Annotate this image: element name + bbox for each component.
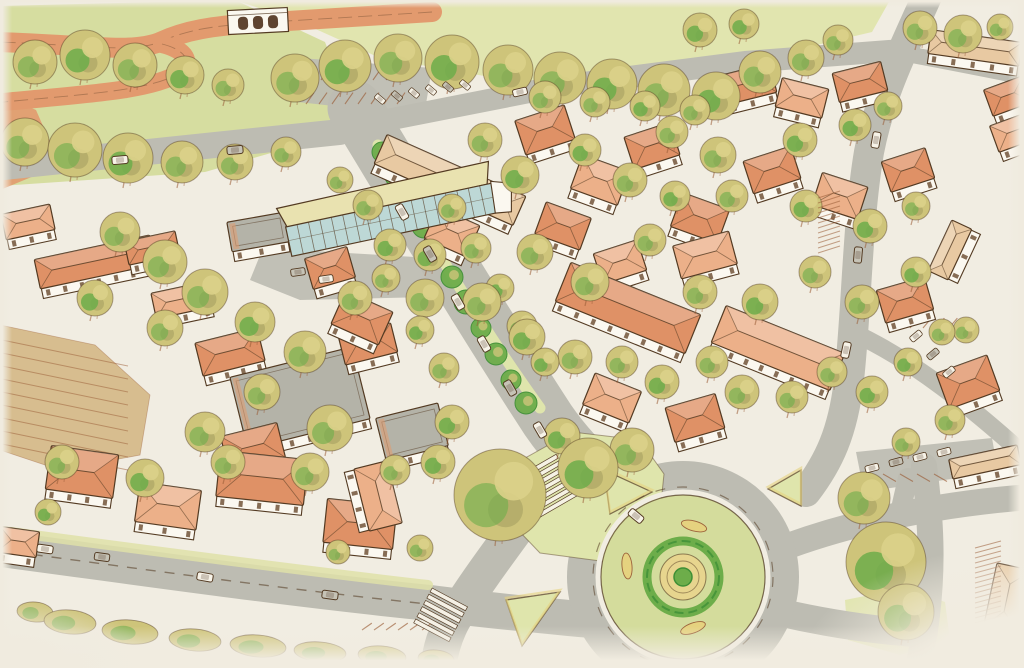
window (103, 499, 108, 505)
canopy-highlight (353, 286, 367, 300)
canopy-highlight (480, 288, 496, 304)
median-shrub-highlight (523, 396, 533, 406)
window (0, 555, 5, 561)
window (383, 551, 388, 557)
canopy-highlight (790, 385, 803, 398)
canopy-highlight (710, 350, 723, 363)
canopy-highlight (948, 409, 961, 422)
canopy-highlight (505, 52, 526, 73)
window (275, 505, 280, 511)
canopy-highlight (648, 228, 661, 241)
canopy-highlight (436, 450, 450, 464)
car-cabin (322, 276, 330, 282)
canopy-highlight (906, 352, 918, 364)
car-cabin (116, 157, 124, 163)
window (364, 549, 369, 555)
canopy-highlight (46, 503, 57, 514)
canopy-highlight (628, 168, 642, 182)
canopy-highlight (660, 370, 674, 384)
tree (953, 317, 979, 343)
hedge-green-accent (365, 651, 387, 663)
canopy-highlight (132, 49, 150, 67)
window (138, 524, 143, 530)
canopy-highlight (118, 218, 135, 235)
canopy-highlight (202, 275, 221, 294)
tree (35, 499, 61, 525)
canopy-highlight (253, 308, 270, 325)
canopy-highlight (393, 459, 406, 472)
canopy-highlight (853, 113, 866, 126)
canopy-highlight (661, 71, 683, 93)
canopy-highlight (82, 37, 103, 58)
canopy-highlight (418, 539, 429, 550)
hedge-green-accent (110, 626, 135, 640)
canopy-highlight (22, 125, 42, 145)
car-cabin (326, 592, 335, 598)
canopy-highlight (498, 278, 510, 290)
hedge-green-accent (302, 647, 325, 659)
hedge-green-accent (423, 655, 439, 666)
canopy-highlight (560, 423, 575, 438)
canopy-highlight (308, 458, 324, 474)
canopy-highlight (302, 337, 320, 355)
canopy-highlight (593, 91, 606, 104)
canopy-highlight (713, 79, 733, 99)
illustration-canvas (0, 0, 1024, 668)
canopy-highlight (861, 479, 883, 501)
window (970, 62, 975, 68)
building-hip (0, 526, 40, 567)
car-cabin (98, 554, 106, 560)
town-aerial-sketch (0, 0, 1024, 668)
canopy-highlight (525, 324, 540, 339)
window (294, 507, 299, 513)
hedge-green-accent (52, 616, 75, 630)
canopy-highlight (918, 16, 932, 30)
canopy-highlight (183, 61, 199, 77)
canopy-highlight (860, 290, 874, 304)
car (37, 544, 54, 554)
canopy-highlight (203, 418, 220, 435)
canopy-highlight (904, 432, 916, 444)
canopy-highlight (804, 194, 817, 207)
bridge-arch (253, 16, 264, 30)
median-shrub-highlight (449, 270, 459, 280)
tree (326, 540, 350, 564)
car-cabin (41, 546, 50, 552)
canopy-highlight (742, 13, 755, 26)
tree (987, 14, 1013, 40)
canopy-highlight (338, 171, 349, 182)
canopy-highlight (384, 268, 396, 280)
canopy-highlight (388, 233, 401, 246)
car (94, 552, 110, 562)
tree (929, 319, 955, 345)
canopy-highlight (226, 73, 239, 86)
canopy-highlight (163, 315, 178, 330)
canopy-highlight (449, 43, 472, 66)
canopy-highlight (72, 131, 95, 154)
canopy-highlight (327, 411, 346, 430)
canopy-highlight (93, 285, 108, 300)
canopy-highlight (588, 268, 604, 284)
road-ne-lot-link (902, 478, 908, 504)
canopy-highlight (60, 450, 74, 464)
canal-bridge (227, 7, 288, 34)
canopy-highlight (740, 380, 754, 394)
canopy-highlight (474, 237, 487, 250)
canopy-highlight (798, 128, 812, 142)
canopy-highlight (758, 289, 773, 304)
canopy-highlight (698, 18, 712, 32)
window (26, 558, 31, 564)
canopy-highlight (143, 464, 159, 480)
canopy-highlight (284, 141, 297, 154)
canopy-highlight (609, 66, 630, 87)
canopy-highlight (518, 161, 534, 177)
canopy-highlight (543, 352, 555, 364)
window (951, 59, 956, 65)
car (853, 247, 862, 264)
median-shrub-highlight (479, 322, 488, 331)
car (290, 267, 305, 276)
canopy-highlight (494, 462, 533, 501)
canopy-highlight (543, 85, 556, 98)
canopy-highlight (179, 147, 197, 165)
canopy-highlight (442, 357, 455, 370)
canopy-highlight (32, 46, 50, 64)
hedge-green-accent (22, 607, 38, 619)
canopy-highlight (533, 239, 548, 254)
window (162, 528, 167, 534)
canopy-highlight (998, 18, 1009, 29)
canopy-highlight (260, 379, 275, 394)
canopy-highlight (557, 59, 579, 81)
canopy-highlight (881, 533, 915, 567)
bridge-arch (238, 17, 249, 31)
canopy-highlight (450, 410, 464, 424)
canopy-highlight (292, 61, 312, 81)
median-shrub-highlight (493, 347, 503, 357)
window (49, 492, 54, 498)
canopy-highlight (620, 350, 633, 363)
canopy-highlight (903, 592, 927, 616)
car (112, 155, 129, 164)
canopy-highlight (914, 196, 926, 208)
car-cabin (294, 269, 302, 275)
car (318, 274, 333, 283)
canopy-highlight (868, 214, 882, 228)
canopy-highlight (450, 198, 462, 210)
window (257, 503, 262, 509)
hedge-green-accent (238, 640, 263, 653)
canopy-highlight (813, 260, 826, 273)
car (227, 145, 244, 154)
hedge-green-accent (177, 634, 200, 647)
canopy-highlight (886, 96, 898, 108)
canopy-highlight (337, 543, 347, 553)
canopy-highlight (961, 20, 977, 36)
canopy-highlight (698, 280, 712, 294)
canopy-highlight (940, 323, 951, 334)
window (932, 56, 937, 62)
canopy-highlight (583, 138, 596, 151)
window (1009, 67, 1014, 73)
canopy-highlight (914, 261, 927, 274)
tree (327, 167, 353, 193)
canopy-highlight (836, 29, 849, 42)
canopy-highlight (483, 128, 497, 142)
canopy-highlight (584, 446, 609, 471)
window (990, 64, 995, 70)
canopy-highlight (804, 45, 819, 60)
bridge-arch (268, 15, 279, 29)
canopy-highlight (870, 380, 883, 393)
canopy-highlight (629, 434, 647, 452)
canopy-highlight (964, 321, 975, 332)
canopy-highlight (830, 361, 843, 374)
window (67, 494, 72, 500)
canopy-highlight (573, 345, 587, 359)
car-cabin (855, 251, 861, 259)
car (322, 590, 339, 600)
canopy-highlight (395, 41, 415, 61)
canopy-highlight (693, 99, 706, 112)
canopy-highlight (423, 284, 439, 300)
canopy-highlight (757, 57, 775, 75)
canopy-highlight (716, 142, 731, 157)
canopy-highlight (366, 194, 379, 207)
fountain-center-bush (674, 568, 692, 586)
canopy-highlight (162, 246, 180, 264)
canopy-highlight (670, 120, 683, 133)
canopy-highlight (643, 95, 656, 108)
canopy-highlight (730, 184, 743, 197)
window (238, 501, 243, 507)
canopy-highlight (418, 320, 430, 332)
tree (407, 535, 433, 561)
window (186, 531, 191, 537)
canopy-highlight (226, 450, 240, 464)
canopy-highlight (342, 47, 364, 69)
car-cabin (231, 147, 239, 153)
window (220, 499, 225, 505)
window (85, 497, 90, 503)
canopy-highlight (673, 185, 686, 198)
